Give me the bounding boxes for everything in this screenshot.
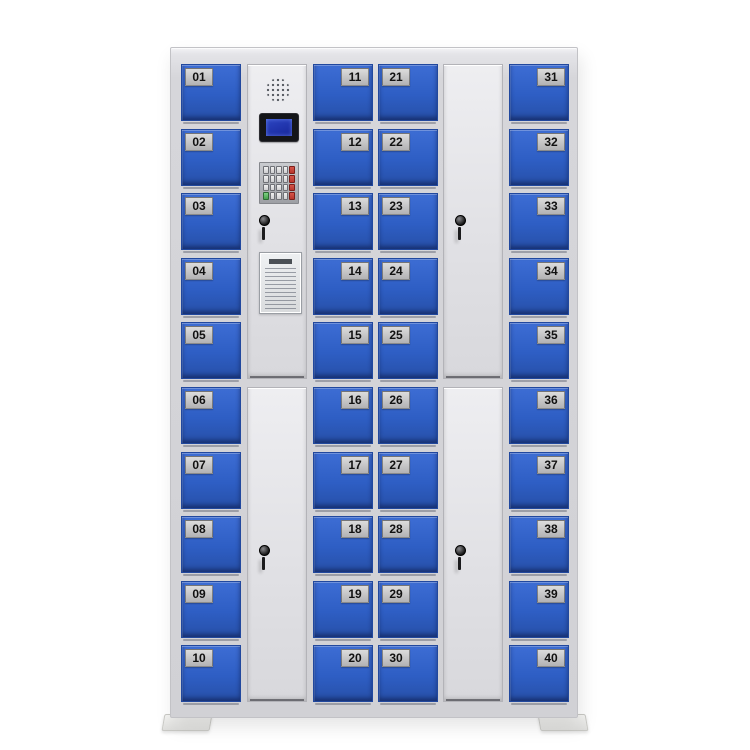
locker-door-02[interactable]: 02 — [181, 129, 241, 186]
instructions-placard — [259, 252, 302, 314]
locker-number-plate: 12 — [341, 133, 369, 151]
key-icon — [458, 557, 461, 570]
lock-knob-icon — [455, 545, 466, 556]
locker-number-plate: 37 — [537, 456, 565, 474]
locker-number-plate: 11 — [341, 68, 369, 86]
locker-number-plate: 07 — [185, 456, 213, 474]
keypad-key[interactable] — [263, 166, 269, 174]
locker-number-plate: 16 — [341, 391, 369, 409]
key-lock[interactable] — [258, 545, 274, 575]
locker-door-23[interactable]: 23 — [378, 193, 438, 250]
keypad-key[interactable] — [283, 184, 289, 192]
locker-number-plate: 04 — [185, 262, 213, 280]
blank-column-lower-door[interactable] — [443, 387, 503, 702]
locker-door-06[interactable]: 06 — [181, 387, 241, 444]
key-lock[interactable] — [454, 545, 470, 575]
keypad-key[interactable] — [270, 184, 276, 192]
locker-product-photo: 0102030405060708091011121314151617181920… — [0, 0, 750, 750]
locker-door-36[interactable]: 36 — [509, 387, 569, 444]
keypad-function-key-red[interactable] — [289, 175, 295, 183]
lcd-screen — [266, 119, 292, 136]
locker-number-plate: 05 — [185, 326, 213, 344]
locker-door-29[interactable]: 29 — [378, 581, 438, 638]
locker-door-30[interactable]: 30 — [378, 645, 438, 702]
locker-number-plate: 22 — [382, 133, 410, 151]
locker-door-31[interactable]: 31 — [509, 64, 569, 121]
locker-number-plate: 15 — [341, 326, 369, 344]
speaker-grille-icon — [265, 77, 291, 103]
locker-door-07[interactable]: 07 — [181, 452, 241, 509]
key-lock[interactable] — [454, 215, 470, 245]
locker-number-plate: 36 — [537, 391, 565, 409]
keypad-function-key-red[interactable] — [289, 184, 295, 192]
locker-door-12[interactable]: 12 — [313, 129, 373, 186]
key-lock[interactable] — [258, 215, 274, 245]
locker-number-plate: 01 — [185, 68, 213, 86]
key-icon — [458, 227, 461, 240]
locker-number-plate: 38 — [537, 520, 565, 538]
lock-knob-icon — [259, 545, 270, 556]
locker-door-21[interactable]: 21 — [378, 64, 438, 121]
keypad-key[interactable] — [276, 192, 282, 200]
keypad-key[interactable] — [263, 175, 269, 183]
locker-number-plate: 09 — [185, 585, 213, 603]
locker-cabinet: 0102030405060708091011121314151617181920… — [170, 47, 578, 718]
locker-door-03[interactable]: 03 — [181, 193, 241, 250]
locker-door-15[interactable]: 15 — [313, 322, 373, 379]
keypad-key[interactable] — [263, 184, 269, 192]
key-icon — [262, 557, 265, 570]
locker-door-24[interactable]: 24 — [378, 258, 438, 315]
locker-number-plate: 24 — [382, 262, 410, 280]
locker-door-28[interactable]: 28 — [378, 516, 438, 573]
locker-door-01[interactable]: 01 — [181, 64, 241, 121]
keypad-key[interactable] — [283, 166, 289, 174]
locker-number-plate: 34 — [537, 262, 565, 280]
locker-door-13[interactable]: 13 — [313, 193, 373, 250]
locker-door-26[interactable]: 26 — [378, 387, 438, 444]
locker-door-05[interactable]: 05 — [181, 322, 241, 379]
locker-door-37[interactable]: 37 — [509, 452, 569, 509]
locker-number-plate: 21 — [382, 68, 410, 86]
locker-door-19[interactable]: 19 — [313, 581, 373, 638]
locker-door-34[interactable]: 34 — [509, 258, 569, 315]
locker-number-plate: 08 — [185, 520, 213, 538]
keypad[interactable] — [259, 162, 299, 204]
keypad-key[interactable] — [270, 192, 276, 200]
locker-number-plate: 35 — [537, 326, 565, 344]
locker-number-plate: 39 — [537, 585, 565, 603]
locker-number-plate: 30 — [382, 649, 410, 667]
keypad-key[interactable] — [276, 184, 282, 192]
locker-door-10[interactable]: 10 — [181, 645, 241, 702]
keypad-key[interactable] — [283, 192, 289, 200]
locker-number-plate: 31 — [537, 68, 565, 86]
control-column-lower-door[interactable] — [247, 387, 307, 702]
locker-door-39[interactable]: 39 — [509, 581, 569, 638]
locker-number-plate: 18 — [341, 520, 369, 538]
locker-door-18[interactable]: 18 — [313, 516, 373, 573]
lcd-display — [259, 113, 299, 142]
locker-door-20[interactable]: 20 — [313, 645, 373, 702]
locker-number-plate: 25 — [382, 326, 410, 344]
locker-number-plate: 03 — [185, 197, 213, 215]
keypad-key[interactable] — [276, 175, 282, 183]
locker-door-27[interactable]: 27 — [378, 452, 438, 509]
locker-door-09[interactable]: 09 — [181, 581, 241, 638]
keypad-key[interactable] — [270, 166, 276, 174]
locker-door-14[interactable]: 14 — [313, 258, 373, 315]
locker-number-plate: 33 — [537, 197, 565, 215]
locker-door-04[interactable]: 04 — [181, 258, 241, 315]
locker-number-plate: 27 — [382, 456, 410, 474]
locker-door-35[interactable]: 35 — [509, 322, 569, 379]
lock-knob-icon — [455, 215, 466, 226]
locker-number-plate: 29 — [382, 585, 410, 603]
keypad-function-key-red[interactable] — [289, 166, 295, 174]
locker-door-38[interactable]: 38 — [509, 516, 569, 573]
locker-number-plate: 14 — [341, 262, 369, 280]
locker-number-plate: 06 — [185, 391, 213, 409]
locker-door-25[interactable]: 25 — [378, 322, 438, 379]
locker-door-22[interactable]: 22 — [378, 129, 438, 186]
locker-door-40[interactable]: 40 — [509, 645, 569, 702]
locker-number-plate: 20 — [341, 649, 369, 667]
locker-number-plate: 28 — [382, 520, 410, 538]
locker-number-plate: 23 — [382, 197, 410, 215]
keypad-function-key-red[interactable] — [289, 192, 295, 200]
locker-door-17[interactable]: 17 — [313, 452, 373, 509]
locker-door-16[interactable]: 16 — [313, 387, 373, 444]
locker-number-plate: 40 — [537, 649, 565, 667]
keypad-function-key-green[interactable] — [263, 192, 269, 200]
locker-number-plate: 17 — [341, 456, 369, 474]
locker-number-plate: 26 — [382, 391, 410, 409]
key-icon — [262, 227, 265, 240]
locker-number-plate: 13 — [341, 197, 369, 215]
placard-title-bar — [269, 259, 292, 264]
locker-number-plate: 10 — [185, 649, 213, 667]
locker-door-11[interactable]: 11 — [313, 64, 373, 121]
locker-door-32[interactable]: 32 — [509, 129, 569, 186]
control-panel-door[interactable] — [247, 64, 307, 379]
keypad-key[interactable] — [270, 175, 276, 183]
keypad-key[interactable] — [276, 166, 282, 174]
locker-door-33[interactable]: 33 — [509, 193, 569, 250]
lock-knob-icon — [259, 215, 270, 226]
placard-text-lines — [265, 268, 296, 310]
locker-number-plate: 19 — [341, 585, 369, 603]
blank-column-upper-door[interactable] — [443, 64, 503, 379]
locker-door-08[interactable]: 08 — [181, 516, 241, 573]
locker-number-plate: 32 — [537, 133, 565, 151]
keypad-key[interactable] — [283, 175, 289, 183]
locker-number-plate: 02 — [185, 133, 213, 151]
